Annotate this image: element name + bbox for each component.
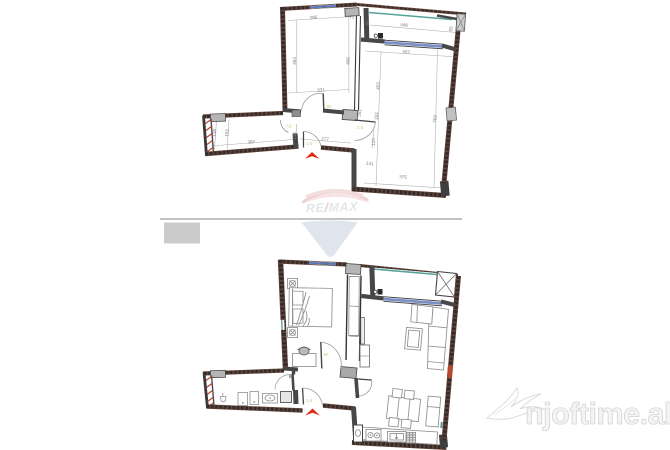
svg-text:296: 296 <box>309 15 317 20</box>
svg-text:1,6: 1,6 <box>306 398 313 403</box>
svg-text:281: 281 <box>357 108 363 117</box>
svg-text:446: 446 <box>400 22 409 28</box>
svg-text:90: 90 <box>326 104 332 109</box>
svg-text:277: 277 <box>321 136 330 142</box>
svg-text:njoftime.al: njoftime.al <box>525 397 670 431</box>
svg-text:332: 332 <box>374 112 379 120</box>
svg-text:702: 702 <box>432 114 438 123</box>
svg-text:152: 152 <box>224 128 230 137</box>
svg-text:457: 457 <box>402 49 411 55</box>
svg-text:403: 403 <box>375 82 380 90</box>
svg-text:463: 463 <box>292 57 297 65</box>
svg-text:90: 90 <box>365 20 370 26</box>
svg-text:2,6: 2,6 <box>357 125 364 130</box>
svg-text:110: 110 <box>371 138 376 146</box>
svg-text:387: 387 <box>247 139 256 145</box>
svg-text:466: 466 <box>345 57 350 65</box>
svg-text:72: 72 <box>349 14 355 19</box>
svg-text:90: 90 <box>323 352 329 357</box>
svg-text:375: 375 <box>399 174 408 180</box>
svg-text:331: 331 <box>317 87 325 92</box>
svg-text:65: 65 <box>448 26 453 32</box>
svg-text:1,6: 1,6 <box>306 141 313 146</box>
svg-text:RE/MAX: RE/MAX <box>306 200 359 216</box>
svg-text:138: 138 <box>212 128 218 137</box>
svg-text:135: 135 <box>292 131 298 140</box>
svg-text:131: 131 <box>366 161 375 167</box>
svg-text:7,6: 7,6 <box>285 124 292 129</box>
